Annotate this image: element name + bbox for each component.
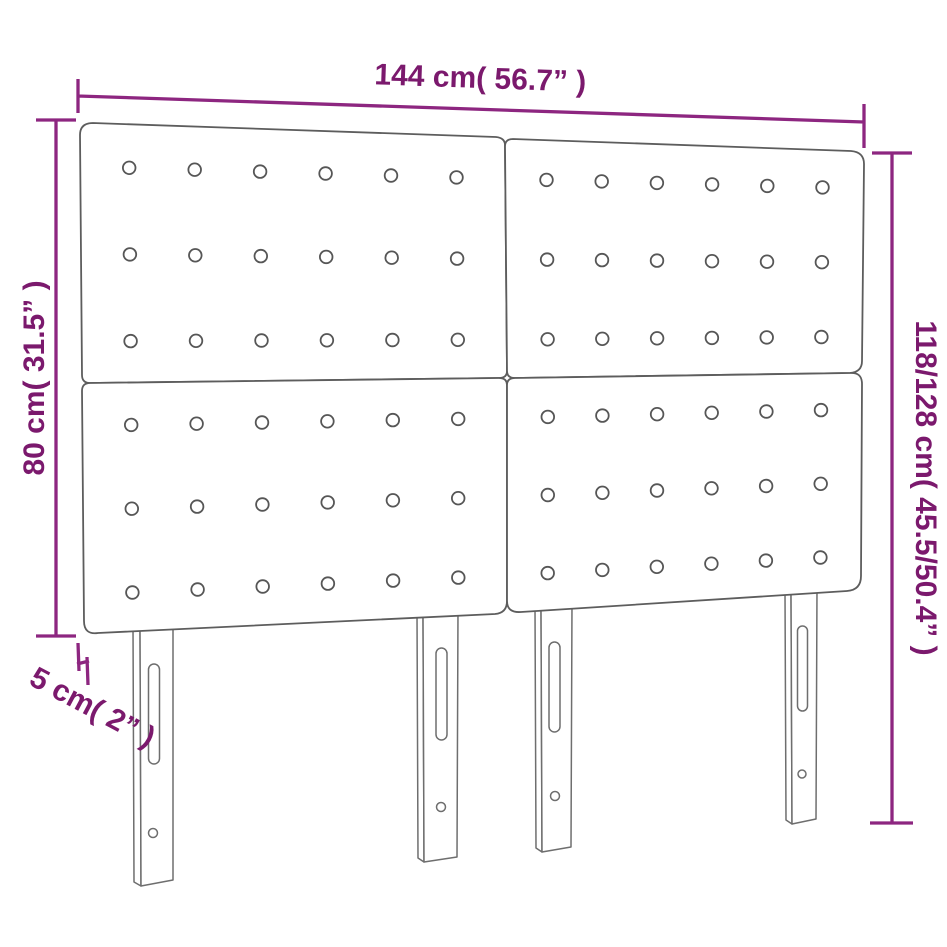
tufting-button — [814, 478, 827, 491]
tufting-button — [596, 409, 609, 422]
tufting-button — [387, 574, 400, 587]
tufting-button — [126, 586, 139, 599]
tufting-button — [705, 482, 718, 495]
tufting-button — [596, 487, 609, 500]
tufting-button — [321, 496, 334, 509]
leg-screw-hole — [149, 829, 158, 838]
panel-height-dimension-label: 80 cm( 31.5” ) — [18, 280, 51, 475]
tufting-button — [596, 333, 609, 346]
tufting-button — [761, 255, 774, 268]
headboard-panels — [80, 123, 864, 633]
tufting-button — [387, 414, 400, 427]
leg-screw-hole — [798, 770, 806, 778]
tufting-button — [256, 416, 269, 429]
total-height-dimension-label: 118/128 cm( 45.5/50.4” ) — [909, 320, 942, 655]
tufting-button — [126, 502, 139, 515]
headboard-leg-2 — [417, 609, 458, 862]
tufting-button — [190, 417, 203, 430]
tufting-button — [706, 255, 719, 268]
tufting-button — [760, 331, 773, 344]
tufting-button — [452, 492, 465, 505]
tufting-button — [651, 332, 664, 345]
tufting-button — [706, 178, 719, 191]
tufting-button — [651, 177, 664, 190]
tufting-button — [452, 413, 465, 426]
tufting-button — [816, 256, 829, 269]
depth-dimension-ticks — [77, 643, 89, 685]
tufting-button — [385, 169, 398, 182]
tufting-button — [761, 180, 774, 193]
headboard-leg-3 — [535, 603, 572, 852]
tufting-button — [254, 165, 267, 178]
tufting-button — [387, 494, 400, 507]
tufting-button — [385, 251, 398, 264]
tufting-button — [191, 583, 204, 596]
leg-screw-hole — [437, 803, 446, 812]
tufting-button — [541, 253, 554, 266]
tufting-button — [452, 571, 465, 584]
headboard-panel-top-right — [505, 139, 864, 378]
leg-screw-hole — [551, 792, 560, 801]
tufting-button — [705, 557, 718, 570]
tufting-button — [541, 333, 554, 346]
tufting-button — [322, 577, 335, 590]
headboard-diagram-image: 144 cm( 56.7” ) 80 cm( 31.5” ) 118/128 c… — [0, 0, 947, 947]
leg-slot — [149, 664, 160, 764]
tufting-button — [124, 335, 137, 348]
tufting-button — [816, 181, 829, 194]
leg-slot — [436, 648, 447, 740]
headboard-legs — [133, 588, 817, 886]
tufting-button — [760, 480, 773, 493]
tufting-button — [189, 249, 202, 262]
total-height-dimension-line — [870, 153, 913, 823]
tufting-button — [321, 415, 334, 428]
tufting-button — [815, 404, 828, 417]
tufting-button — [540, 174, 553, 187]
headboard-panel-bottom-left — [82, 378, 507, 633]
leg-slot — [549, 642, 560, 732]
tufting-button — [651, 254, 664, 267]
headboard-leg-4 — [785, 588, 817, 824]
tufting-button — [596, 254, 609, 267]
tufting-button — [320, 251, 333, 264]
tufting-button — [191, 500, 204, 513]
tufting-button — [125, 419, 138, 432]
tufting-button — [651, 408, 664, 421]
tufting-button — [386, 334, 399, 347]
headboard-panel-top-left — [80, 123, 507, 383]
headboard-leg-1 — [133, 622, 173, 886]
tufting-button — [705, 407, 718, 420]
tufting-button — [256, 498, 269, 511]
tufting-button — [542, 411, 555, 424]
headboard-diagram-page: 144 cm( 56.7” ) 80 cm( 31.5” ) 118/128 c… — [0, 0, 947, 947]
tufting-button — [451, 252, 464, 265]
tufting-button — [541, 567, 554, 580]
tufting-button — [188, 163, 201, 176]
tufting-button — [814, 551, 827, 564]
tufting-button — [815, 331, 828, 344]
tufting-button — [651, 484, 664, 497]
tufting-button — [123, 162, 136, 175]
tufting-button — [255, 334, 268, 347]
tufting-button — [452, 334, 465, 347]
leg-slot — [798, 626, 808, 711]
width-dimension-label: 144 cm( 56.7” ) — [374, 58, 587, 98]
headboard-panel-bottom-right — [507, 373, 862, 612]
tufting-button — [254, 250, 267, 263]
tufting-button — [450, 171, 463, 184]
tufting-button — [651, 561, 664, 574]
tufting-button — [190, 335, 203, 348]
tufting-button — [542, 489, 555, 502]
tufting-button — [595, 175, 608, 188]
tufting-button — [321, 334, 334, 347]
tufting-button — [256, 580, 269, 593]
tufting-button — [760, 405, 773, 418]
tufting-button — [124, 248, 137, 261]
tufting-button — [706, 332, 719, 345]
tufting-button — [760, 554, 773, 567]
tufting-button — [319, 167, 332, 180]
tufting-button — [596, 564, 609, 577]
